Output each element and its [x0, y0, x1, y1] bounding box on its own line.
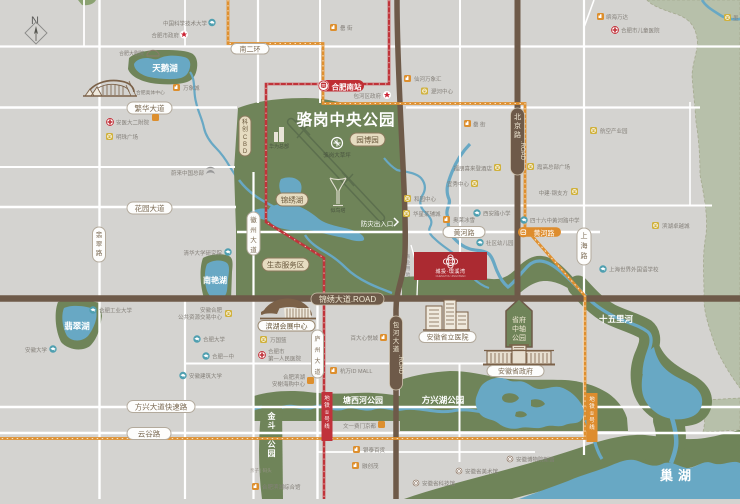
- svg-text:大: 大: [393, 336, 400, 345]
- svg-text:罍 街: 罍 街: [473, 121, 486, 129]
- svg-text:杭万ID MALL: 杭万ID MALL: [340, 367, 372, 375]
- svg-text:南艳湖: 南艳湖: [203, 275, 227, 285]
- svg-text:第一人民医院: 第一人民医院: [268, 355, 302, 363]
- svg-text:公园: 公园: [512, 334, 526, 342]
- svg-text:方兴湖公园: 方兴湖公园: [422, 395, 465, 405]
- svg-text:包河区政府: 包河区政府: [353, 92, 381, 100]
- svg-text:州: 州: [250, 227, 257, 234]
- svg-text:华为总部: 华为总部: [269, 143, 289, 150]
- svg-text:号: 号: [589, 417, 595, 424]
- svg-text:.ROAD: .ROAD: [397, 355, 403, 375]
- svg-text:巢湖: 巢湖: [659, 468, 696, 483]
- svg-text:华星某辅城: 华星某辅城: [413, 210, 441, 218]
- svg-text:滨湖卓越城: 滨湖卓越城: [662, 222, 690, 230]
- svg-text:C: C: [243, 135, 248, 141]
- svg-text:D: D: [243, 149, 248, 155]
- svg-text:黄河路: 黄河路: [454, 228, 475, 237]
- svg-text:上: 上: [581, 231, 588, 240]
- svg-text:亲子 | 码头: 亲子 | 码头: [250, 467, 272, 474]
- svg-text:铁: 铁: [589, 402, 595, 410]
- svg-text:大: 大: [314, 357, 320, 365]
- svg-text:徽: 徽: [250, 215, 257, 224]
- svg-text:安徽博物院新馆: 安徽博物院新馆: [516, 456, 555, 464]
- svg-text:福朋喜来登酒店: 福朋喜来登酒店: [453, 165, 492, 173]
- svg-text:道: 道: [314, 368, 320, 376]
- svg-text:云谷路: 云谷路: [138, 429, 161, 439]
- svg-text:合肥一中: 合肥一中: [212, 353, 234, 361]
- svg-text:淝河中心: 淝河中心: [431, 88, 454, 96]
- svg-text:地: 地: [589, 395, 595, 403]
- svg-text:安徽省美术馆: 安徽省美术馆: [465, 468, 499, 476]
- svg-text:合肥大学: 合肥大学: [203, 336, 226, 344]
- svg-text:黄河路: 黄河路: [534, 228, 555, 237]
- svg-text:包: 包: [393, 320, 400, 329]
- svg-text:斗: 斗: [268, 421, 276, 430]
- svg-text:社区幼儿园: 社区幼儿园: [486, 239, 514, 247]
- svg-text:安徽建筑大学: 安徽建筑大学: [189, 372, 223, 380]
- svg-text:南二环: 南二环: [240, 45, 261, 54]
- svg-text:安徽省立医院: 安徽省立医院: [427, 333, 469, 342]
- svg-text:四十六中黄河路中学: 四十六中黄河路中学: [530, 217, 580, 225]
- svg-text:明珠广场: 明珠广场: [116, 133, 139, 141]
- svg-text:园博园: 园博园: [356, 135, 379, 145]
- svg-text:繁华大道: 繁华大道: [135, 103, 165, 113]
- svg-text:十五里河: 十五里河: [599, 314, 634, 324]
- svg-text:.ROAD: .ROAD: [519, 141, 525, 161]
- svg-text:安徽大学: 安徽大学: [25, 346, 48, 354]
- svg-text:合肥市儿童医院: 合肥市儿童医院: [621, 27, 660, 35]
- svg-text:霞高总部广场: 霞高总部广场: [537, 163, 571, 171]
- svg-text:号: 号: [324, 416, 330, 423]
- svg-text:城投·璟溪湾: 城投·璟溪湾: [435, 268, 465, 275]
- svg-text:合肥南站: 合肥南站: [332, 82, 362, 92]
- svg-text:①: ①: [325, 409, 330, 416]
- svg-text:地: 地: [324, 394, 330, 402]
- svg-text:线: 线: [589, 423, 595, 431]
- svg-text:园: 园: [268, 449, 276, 458]
- svg-text:花园大道: 花园大道: [135, 203, 165, 213]
- svg-text:融创茂: 融创茂: [362, 462, 379, 470]
- svg-text:奥莱冰雪: 奥莱冰雪: [453, 216, 476, 224]
- svg-text:①: ①: [590, 410, 595, 417]
- svg-text:路: 路: [514, 130, 521, 139]
- svg-text:墨: 墨: [733, 15, 739, 22]
- svg-text:安徽合肥: 安徽合肥: [200, 306, 223, 314]
- svg-text:道: 道: [393, 344, 400, 353]
- svg-text:安榭海购中心: 安榭海购中心: [272, 380, 306, 388]
- svg-text:合肥滨湖综合馆: 合肥滨湖综合馆: [262, 483, 301, 491]
- svg-text:京: 京: [514, 121, 521, 130]
- svg-text:西安路小学: 西安路小学: [483, 210, 511, 218]
- svg-text:道: 道: [250, 245, 257, 254]
- svg-text:北: 北: [514, 113, 521, 121]
- svg-text:中国科学技术大学: 中国科学技术大学: [163, 20, 208, 28]
- svg-text:河: 河: [393, 329, 400, 337]
- svg-text:合肥市: 合肥市: [268, 348, 285, 356]
- svg-text:骆岗大草坪: 骆岗大草坪: [323, 151, 351, 159]
- svg-text:方兴大道快速路: 方兴大道快速路: [135, 402, 188, 412]
- svg-text:B: B: [243, 142, 247, 148]
- svg-text:地: 地: [406, 271, 411, 277]
- svg-text:航空产业园: 航空产业园: [600, 127, 628, 135]
- svg-text:合肥奥体中心: 合肥奥体中心: [136, 89, 165, 96]
- svg-text:安医大二附院: 安医大二附院: [116, 119, 150, 127]
- svg-text:安徽省政府: 安徽省政府: [498, 367, 533, 376]
- svg-text:合肥滨湖: 合肥滨湖: [283, 373, 306, 381]
- svg-text:公: 公: [268, 440, 276, 449]
- svg-text:金: 金: [267, 411, 277, 421]
- svg-text:合肥工业大学: 合肥工业大学: [99, 307, 133, 315]
- svg-text:合肥市政府: 合肥市政府: [151, 32, 179, 40]
- svg-text:生态服务区: 生态服务区: [267, 260, 305, 270]
- svg-text:路: 路: [96, 248, 103, 257]
- svg-text:缤海万达: 缤海万达: [606, 13, 629, 21]
- svg-text:锦绣大道.ROAD: 锦绣大道.ROAD: [319, 294, 377, 304]
- svg-text:文一费门京都: 文一费门京都: [343, 422, 377, 430]
- svg-text:上海世界外国语学校: 上海世界外国语学校: [609, 266, 659, 274]
- svg-text:宜秀中心: 宜秀中心: [447, 180, 470, 188]
- svg-text:翠: 翠: [96, 240, 103, 248]
- svg-text:合肥大剧院: 合肥大剧院: [119, 50, 144, 57]
- svg-text:似鸟塔: 似鸟塔: [330, 207, 345, 214]
- svg-text:省府: 省府: [512, 315, 526, 324]
- svg-text:安徽省科技馆: 安徽省科技馆: [422, 480, 456, 488]
- svg-text:海: 海: [581, 241, 588, 250]
- svg-text:天鹅湖: 天鹅湖: [152, 63, 178, 73]
- svg-text:清华大学研究院: 清华大学研究院: [183, 249, 222, 257]
- svg-text:万象城: 万象城: [183, 84, 200, 92]
- svg-text:防灾出入口: 防灾出入口: [361, 219, 394, 228]
- svg-text:路: 路: [581, 251, 588, 260]
- svg-text:翡翠湖: 翡翠湖: [64, 321, 90, 331]
- svg-text:骆岗中央公园: 骆岗中央公园: [296, 110, 395, 129]
- svg-text:塘西河公园: 塘西河公园: [343, 395, 383, 405]
- svg-text:创: 创: [242, 125, 248, 133]
- svg-text:科: 科: [242, 118, 248, 126]
- svg-text:中建·钢支方: 中建·钢支方: [539, 189, 569, 197]
- svg-text:翡: 翡: [96, 230, 103, 239]
- svg-text:庐: 庐: [314, 335, 320, 343]
- svg-text:蔚来中国总部: 蔚来中国总部: [171, 169, 205, 177]
- svg-text:CHENGTOU JINGXIWAN: CHENGTOU JINGXIWAN: [436, 274, 466, 278]
- svg-text:公共资源交易中心: 公共资源交易中心: [178, 313, 223, 321]
- svg-text:百大心悦城: 百大心悦城: [350, 334, 378, 342]
- svg-text:万国篮: 万国篮: [270, 336, 287, 344]
- svg-text:锦绣湖: 锦绣湖: [281, 195, 304, 205]
- svg-text:和园中心: 和园中心: [414, 195, 437, 203]
- svg-text:铁: 铁: [324, 401, 330, 409]
- svg-text:线: 线: [324, 422, 330, 430]
- svg-text:中轴: 中轴: [512, 324, 526, 333]
- svg-text:罍 街: 罍 街: [340, 24, 353, 32]
- svg-text:大: 大: [250, 235, 257, 244]
- svg-text:州: 州: [314, 347, 320, 354]
- svg-text:滨湖会展中心: 滨湖会展中心: [266, 322, 308, 331]
- svg-text:银泰百货: 银泰百货: [363, 446, 386, 454]
- svg-text:仙河万象汇: 仙河万象汇: [414, 75, 442, 83]
